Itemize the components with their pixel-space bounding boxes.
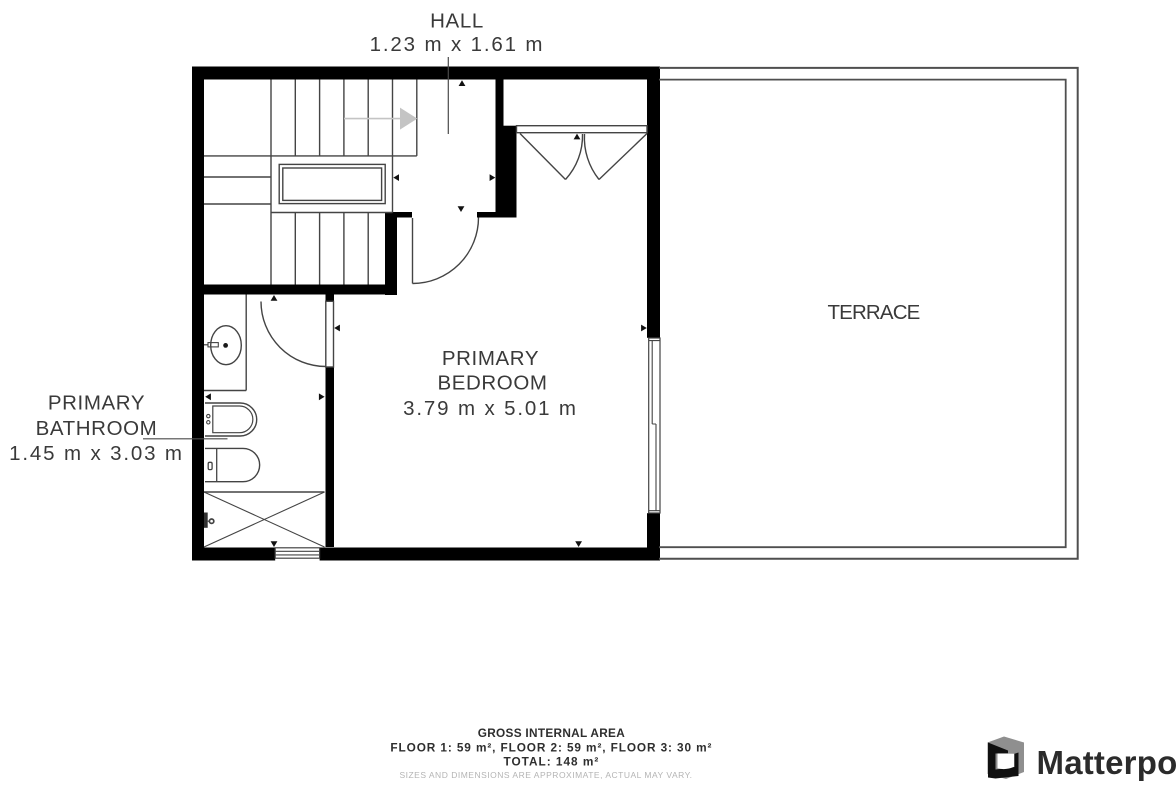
svg-text:BEDROOM: BEDROOM [437,371,547,394]
svg-text:Matterport: Matterport [1037,744,1176,781]
svg-text:PRIMARY: PRIMARY [442,347,539,370]
svg-text:1.23 m x 1.61 m: 1.23 m x 1.61 m [370,33,545,56]
svg-text:1.45 m x 3.03 m: 1.45 m x 3.03 m [9,442,184,465]
svg-text:SIZES AND DIMENSIONS ARE APPRO: SIZES AND DIMENSIONS ARE APPROXIMATE, AC… [399,770,692,780]
svg-text:FLOOR 1: 59 m², FLOOR 2: 59 m²: FLOOR 1: 59 m², FLOOR 2: 59 m², FLOOR 3:… [390,740,712,754]
svg-text:GROSS INTERNAL AREA: GROSS INTERNAL AREA [478,726,625,740]
svg-text:3.79 m x 5.01 m: 3.79 m x 5.01 m [403,397,578,420]
svg-text:TOTAL: 148 m²: TOTAL: 148 m² [503,754,599,768]
svg-text:HALL: HALL [430,9,484,32]
svg-text:TERRACE: TERRACE [827,301,919,324]
svg-text:PRIMARY: PRIMARY [48,392,145,415]
svg-text:BATHROOM: BATHROOM [36,417,158,440]
